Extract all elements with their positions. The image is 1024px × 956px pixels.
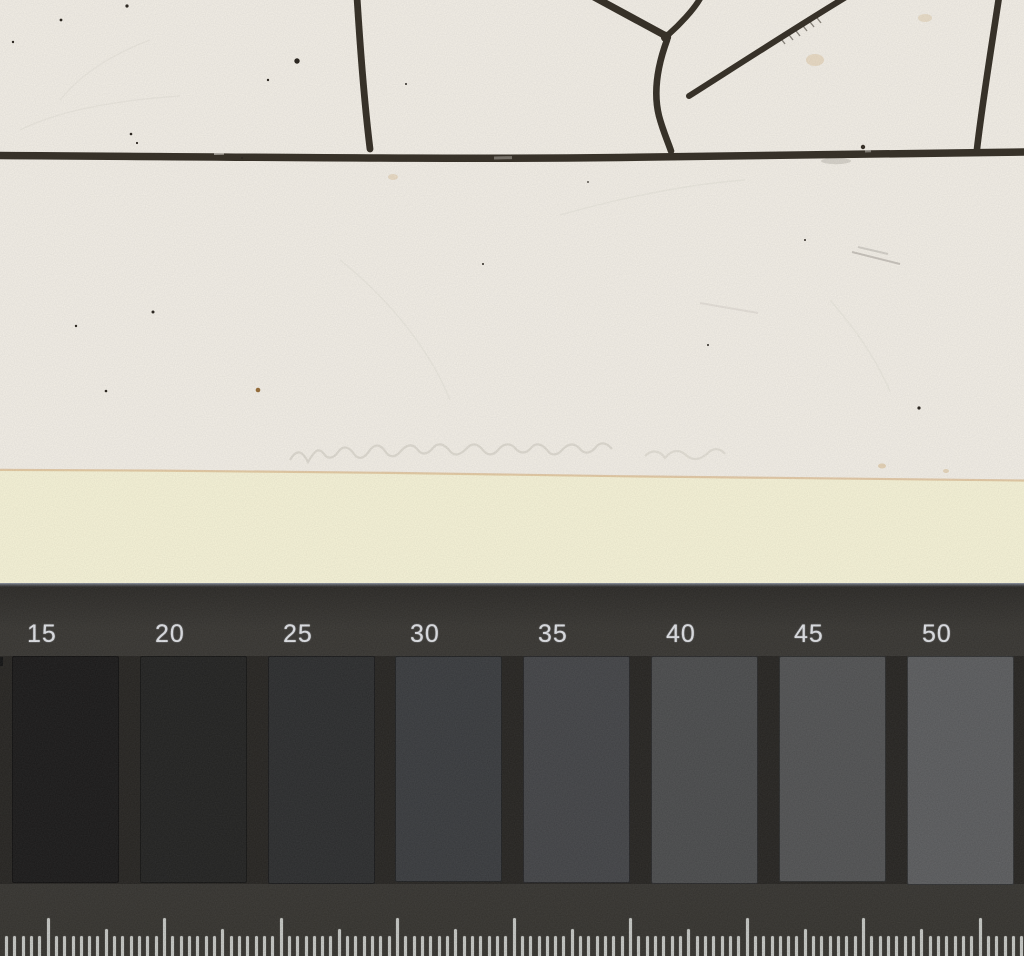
ruler-tick <box>113 936 116 956</box>
ruler-tick <box>779 936 782 956</box>
ruler-tick <box>479 936 482 956</box>
ruler-tick <box>263 936 266 956</box>
ruler-tick <box>554 936 557 956</box>
ruler-tick <box>38 936 41 956</box>
ruler-tick <box>962 936 965 956</box>
ruler-tick <box>105 929 108 956</box>
ruler-tick <box>1012 936 1015 956</box>
ruler-tick <box>354 936 357 956</box>
ruler-tick <box>612 936 615 956</box>
grayscale-steps-row <box>0 656 1024 884</box>
ruler-tick <box>180 936 183 956</box>
ruler-major-tick <box>862 918 865 956</box>
ruler-tick <box>313 936 316 956</box>
ruler-tick <box>379 936 382 956</box>
grayscale-step-label: 30 <box>410 620 440 649</box>
ruler-tick <box>954 936 957 956</box>
ruler-tick <box>970 936 973 956</box>
ruler-major-tick <box>513 918 516 956</box>
grayscale-step-label: 40 <box>666 620 696 649</box>
ruler-tick <box>704 936 707 956</box>
ruler-tick <box>895 936 898 956</box>
grayscale-step <box>140 656 247 883</box>
ruler-tick <box>696 936 699 956</box>
ruler-tick <box>538 936 541 956</box>
grayscale-step <box>779 656 886 882</box>
ruler-tick <box>737 936 740 956</box>
ruler-tick <box>388 936 391 956</box>
grayscale-step-label: 15 <box>27 620 57 649</box>
ruler-tick <box>579 936 582 956</box>
ruler-tick <box>138 936 141 956</box>
ruler-tick <box>521 936 524 956</box>
grayscale-step <box>523 656 630 883</box>
ruler-major-tick <box>979 918 982 956</box>
ruler-tick <box>155 936 158 956</box>
ruler-tick <box>837 936 840 956</box>
ruler-tick <box>754 936 757 956</box>
ruler-tick <box>238 936 241 956</box>
ruler-tick <box>496 936 499 956</box>
ruler-tick <box>870 936 873 956</box>
ruler-tick <box>55 936 58 956</box>
ruler-tick <box>454 929 457 956</box>
grayscale-step <box>651 656 758 884</box>
ruler-tick <box>288 936 291 956</box>
ruler-tick <box>829 936 832 956</box>
ruler-tick <box>812 936 815 956</box>
previous-step-edge <box>0 657 3 666</box>
ruler-tick <box>221 929 224 956</box>
ruler-tick <box>795 936 798 956</box>
ruler-tick <box>721 936 724 956</box>
ruler-tick <box>205 936 208 956</box>
ruler-tick <box>671 936 674 956</box>
grayscale-step-label: 35 <box>538 620 568 649</box>
grayscale-step <box>907 656 1014 885</box>
grayscale-calibration-bar: 1520253035404550 <box>0 583 1024 956</box>
ruler-tick <box>1020 936 1023 956</box>
ruler-tick <box>995 936 998 956</box>
ruler-tick <box>80 936 83 956</box>
ruler-tick <box>587 936 590 956</box>
ruler-tick <box>845 936 848 956</box>
ruler-tick <box>146 936 149 956</box>
ruler-tick <box>771 936 774 956</box>
ruler-tick <box>438 936 441 956</box>
ruler-major-tick <box>746 918 749 956</box>
ruler-tick <box>321 936 324 956</box>
ruler-tick <box>762 936 765 956</box>
ruler-tick <box>471 936 474 956</box>
ruler-tick <box>296 936 299 956</box>
ruler-tick <box>621 936 624 956</box>
ruler-tick <box>338 929 341 956</box>
ruler-tick <box>404 936 407 956</box>
ruler-tick <box>371 936 374 956</box>
artwork-paper <box>0 0 1024 481</box>
ruler-major-tick <box>629 918 632 956</box>
ruler-tick <box>121 936 124 956</box>
ruler-tick <box>529 936 532 956</box>
ruler-tick <box>13 936 16 956</box>
ruler-tick <box>937 936 940 956</box>
ruler-major-tick <box>396 918 399 956</box>
ruler-tick <box>96 936 99 956</box>
ruler-tick <box>329 936 332 956</box>
ruler-major-tick <box>280 918 283 956</box>
ground-line-notch <box>861 145 865 149</box>
ruler-tick <box>654 936 657 956</box>
ruler-tick <box>446 936 449 956</box>
ruler-tick <box>196 936 199 956</box>
ruler-tick <box>1004 936 1007 956</box>
ruler-tick <box>887 936 890 956</box>
ruler-tick <box>854 936 857 956</box>
ruler-tick <box>729 936 732 956</box>
ruler-tick <box>413 936 416 956</box>
ruler-tick <box>820 936 823 956</box>
ruler-strip <box>0 914 1024 956</box>
ruler-tick <box>72 936 75 956</box>
ruler-tick <box>5 936 8 956</box>
ruler-tick <box>637 936 640 956</box>
ruler-tick <box>305 936 308 956</box>
brown-speck <box>256 388 261 393</box>
ruler-tick <box>546 936 549 956</box>
grayscale-step-label: 45 <box>794 620 824 649</box>
ruler-tick <box>912 936 915 956</box>
ruler-tick <box>787 936 790 956</box>
ruler-tick <box>604 936 607 956</box>
ruler-major-tick <box>163 918 166 956</box>
ruler-tick <box>488 936 491 956</box>
grayscale-step-label: 25 <box>283 620 313 649</box>
ruler-tick <box>230 936 233 956</box>
ruler-tick <box>213 936 216 956</box>
grayscale-step-label: 50 <box>922 620 952 649</box>
ruler-tick <box>904 936 907 956</box>
grayscale-step <box>12 656 119 883</box>
ruler-tick <box>130 936 133 956</box>
artwork-scan <box>0 0 1024 583</box>
ruler-tick <box>246 936 249 956</box>
ruler-tick <box>421 936 424 956</box>
ruler-tick <box>171 936 174 956</box>
ruler-tick <box>662 936 665 956</box>
ruler-major-tick <box>47 918 50 956</box>
scanned-artwork-photo: 1520253035404550 <box>0 0 1024 956</box>
ruler-tick <box>712 936 715 956</box>
ruler-tick <box>255 936 258 956</box>
graphite-smudge <box>821 158 851 164</box>
ruler-tick <box>363 936 366 956</box>
ruler-tick <box>429 936 432 956</box>
ruler-tick <box>679 936 682 956</box>
ruler-tick <box>562 936 565 956</box>
ruler-tick <box>63 936 66 956</box>
ruler-tick <box>22 936 25 956</box>
ruler-tick <box>88 936 91 956</box>
ruler-tick <box>646 936 649 956</box>
ruler-tick <box>987 936 990 956</box>
ruler-tick <box>920 929 923 956</box>
ruler-tick <box>346 936 349 956</box>
ruler-tick <box>596 936 599 956</box>
ruler-tick <box>879 936 882 956</box>
grayscale-step <box>268 656 375 884</box>
ruler-tick <box>929 936 932 956</box>
ruler-tick <box>188 936 191 956</box>
ruler-tick <box>271 936 274 956</box>
ruler-tick <box>571 929 574 956</box>
ruler-tick <box>945 936 948 956</box>
ruler-tick <box>463 936 466 956</box>
ruler-tick <box>30 936 33 956</box>
grayscale-step <box>395 656 502 882</box>
ruler-tick <box>504 936 507 956</box>
ruler-tick <box>804 929 807 956</box>
grayscale-step-label: 20 <box>155 620 185 649</box>
ruler-tick <box>687 929 690 956</box>
bar-top-highlight <box>0 583 1024 587</box>
